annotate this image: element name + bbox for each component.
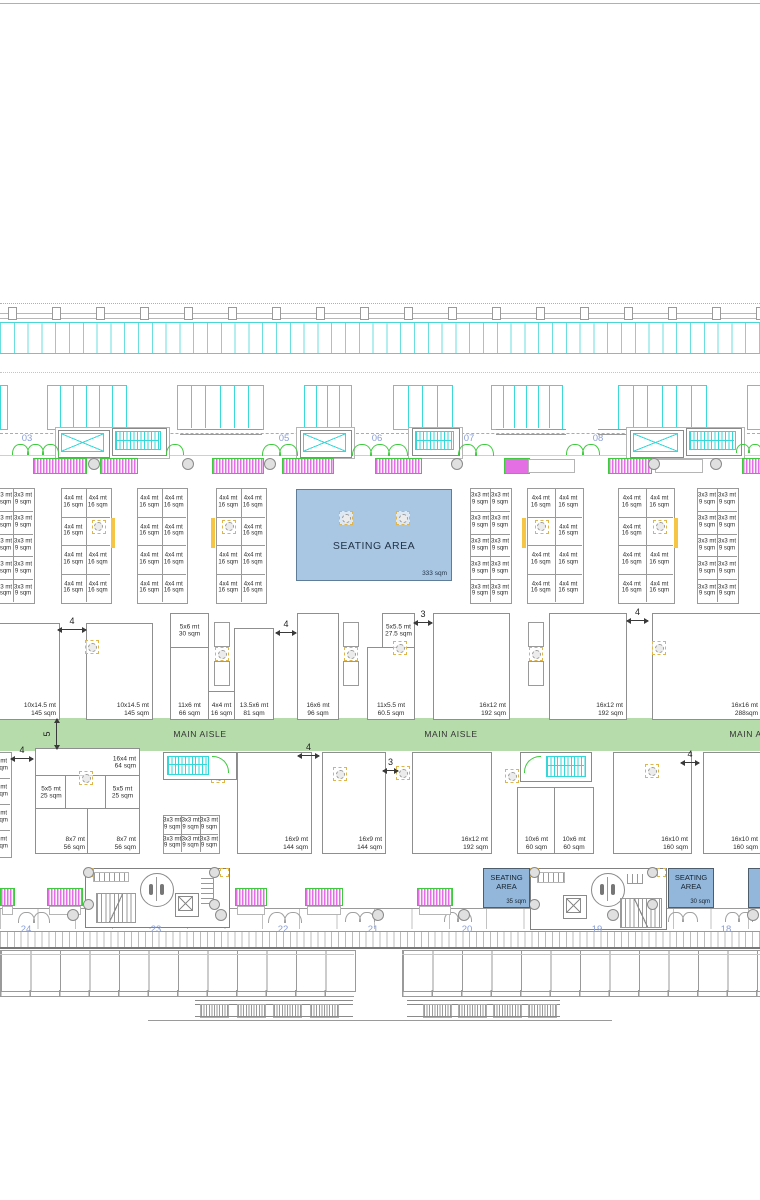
grid-line-h <box>618 545 673 546</box>
roof-rail-2 <box>0 318 760 319</box>
column-dot <box>372 909 384 921</box>
column-circle <box>399 514 408 523</box>
skylight-divider <box>422 385 423 428</box>
sink-row <box>93 872 129 882</box>
bench <box>100 458 138 474</box>
seating-area-small-size: 35 sqm <box>506 899 526 905</box>
column-circle <box>342 514 351 523</box>
pilaster-lower <box>528 661 544 686</box>
booth-cell-label: 3x3 mt 9 sqm <box>14 493 32 506</box>
door-arc <box>370 444 390 456</box>
booth-cell-label: 3x3 mt 9 sqm <box>491 561 509 574</box>
walkway-bottom-rail <box>407 1016 560 1017</box>
booth-label: 8x7 mt 56 sqm <box>115 836 136 851</box>
booth-cell-label: 3x3 mt 9 sqm <box>718 493 736 506</box>
booth-cell-label: 3x3 mt 9 sqm <box>718 515 736 528</box>
skylight-panel <box>177 385 264 430</box>
skylight-divider <box>503 385 504 428</box>
glazing-inner-line <box>402 954 760 955</box>
floor-plan-canvas: MAIN AISLE MAIN AISLE MAIN AISLE SEATING… <box>0 0 760 1200</box>
roof-post <box>712 307 721 320</box>
grid-label-bottom: 18 <box>721 924 732 935</box>
seating-area-small-size: 30 sqm <box>690 899 710 905</box>
grid-line-h <box>697 556 737 557</box>
elevator-box <box>58 430 110 458</box>
grid-line-h <box>0 579 33 580</box>
seating-area-small-label: SEATING AREA <box>669 873 713 891</box>
grid-label-bottom: 23 <box>151 924 162 935</box>
booth-cell-label: 4x4 mt 16 sqm <box>531 553 551 566</box>
booth-cell-label: 4x4 mt 16 sqm <box>243 581 263 594</box>
column-circle <box>648 767 657 776</box>
booth-cell-label: 4x4 mt 16 sqm <box>164 581 184 594</box>
glazing-inner-line <box>0 954 354 955</box>
booth: 11x6 mt 66 sqm <box>170 647 209 720</box>
booth-label: 16x9 mt 144 sqm <box>283 836 308 851</box>
booth-cell-label: 4x4 mt 16 sqm <box>88 496 108 509</box>
booth-cell-label: 3x3 mt 9 sqm <box>471 561 489 574</box>
booth-label: 5x6 mt 30 sqm <box>179 624 200 639</box>
skylight-divider <box>408 385 409 428</box>
grid-line-h <box>61 517 110 518</box>
bench-outline <box>528 459 575 473</box>
booth: 16x6 mt 96 sqm <box>297 613 339 720</box>
canopy-lines <box>496 429 566 435</box>
grid-line-h <box>0 511 33 512</box>
bench <box>504 458 530 474</box>
yellow-corner-mark <box>220 868 229 877</box>
booth-cell-label: 3x3 mt 9 sqm <box>471 515 489 528</box>
booth-label: 5x5 mt 25 sqm <box>40 785 61 800</box>
booth-cell-label: 4x4 mt 16 sqm <box>63 496 83 509</box>
column-circle <box>88 643 97 652</box>
column-circle <box>537 522 546 531</box>
booth: 16x12 mt 192 sqm <box>549 613 627 720</box>
grid-line-h <box>527 545 582 546</box>
column-dot <box>458 909 470 921</box>
booth-cell-label: 3x3 mt 9 sqm <box>698 538 716 551</box>
door-arc <box>682 912 698 922</box>
booth-label: 8x7 mt 56 sqm <box>64 836 85 851</box>
booth-cell-label: 3x3 mt 9 sqm <box>471 493 489 506</box>
booth-label: 16x9 mt 144 sqm <box>357 836 382 851</box>
column-symbol <box>222 520 236 534</box>
yellow-wall-strip <box>522 518 526 548</box>
column-dot <box>451 458 463 470</box>
grid-label-top: 07 <box>464 433 475 444</box>
bench <box>742 458 760 474</box>
skylight-divider <box>73 385 74 428</box>
walkway-bottom-rail <box>195 1016 353 1017</box>
skylight-divider <box>112 385 113 428</box>
booth-cell-label: 4x4 mt 16 sqm <box>88 553 108 566</box>
booth-cell-label: 3x3 mt 9 sqm <box>718 538 736 551</box>
booth-label: 16x16 mt 288sqm <box>731 702 758 717</box>
column-symbol <box>529 647 543 661</box>
pilaster-upper <box>343 622 359 647</box>
column-circle <box>94 522 103 531</box>
roof-post <box>8 307 17 320</box>
column-symbol <box>344 647 358 661</box>
column-symbol <box>333 767 347 781</box>
grid-line-h <box>137 574 186 575</box>
skylight-divider <box>60 385 61 428</box>
booth-cell-label: 3x3 mt 9 sqm <box>200 818 218 831</box>
grid-line-h <box>61 545 110 546</box>
grid-line-h <box>137 545 186 546</box>
canopy-lines <box>180 429 262 435</box>
booth-cell-label: 3x3 mt 9 sqm <box>491 538 509 551</box>
column-circle <box>508 772 517 781</box>
booth: 16x12 mt 192 sqm <box>412 752 492 854</box>
column-dot <box>647 899 658 910</box>
skylight-divider <box>549 385 550 428</box>
booth-cell-label: 4x4 mt 16 sqm <box>622 581 642 594</box>
roof-post <box>580 307 589 320</box>
column-symbol <box>92 520 106 534</box>
grid-line-h <box>0 534 33 535</box>
booth-cell-label: 4x4 mt 16 sqm <box>164 524 184 537</box>
dimension-line <box>414 622 432 623</box>
yellow-wall-strip <box>211 518 215 548</box>
booth-cell-label: 3x3 mt 9 sqm <box>718 561 736 574</box>
booth-cell-label: 4x4 mt 16 sqm <box>0 758 8 771</box>
column-dot <box>648 458 660 470</box>
booth-cell-label: 3x3 mt 9 sqm <box>0 493 12 506</box>
skylight-divider <box>339 385 340 428</box>
booth: 8x7 mt 56 sqm <box>87 808 140 854</box>
dimension-line <box>681 762 699 763</box>
booth: 5x6 mt 30 sqm <box>170 613 209 649</box>
grid-line-h <box>61 574 110 575</box>
booth-cell-label: 3x3 mt 9 sqm <box>698 493 716 506</box>
booth-cell-label: 4x4 mt 16 sqm <box>622 553 642 566</box>
column-dot <box>529 867 540 878</box>
escalator-box <box>686 428 742 456</box>
booth: 16x12 mt 192 sqm <box>433 613 510 720</box>
column-symbol <box>505 769 519 783</box>
wc-figure-male <box>600 884 604 895</box>
door-arc <box>279 444 298 456</box>
grid-line-h <box>216 517 265 518</box>
grid-line-h <box>0 804 10 805</box>
skylight-divider <box>676 385 677 428</box>
roof-post <box>404 307 413 320</box>
seating-area-small: SEATING AREA30 sqm <box>668 868 714 908</box>
main-aisle-label: MAIN AISLE <box>424 729 477 739</box>
column-dot <box>209 899 220 910</box>
door-arc <box>284 912 302 923</box>
door-arc <box>388 444 408 456</box>
booth-label: 16x10 mt 160 sqm <box>661 836 688 851</box>
booth-cell-label: 3x3 mt 9 sqm <box>0 538 12 551</box>
escalator-hatch <box>546 756 586 777</box>
booth-cell-label: 3x3 mt 9 sqm <box>14 538 32 551</box>
roof-post <box>668 307 677 320</box>
skylight-divider <box>514 385 515 428</box>
bench <box>0 888 15 906</box>
booth-label: 10x14.5 mt 145 sqm <box>117 702 149 717</box>
sink-row <box>537 872 565 883</box>
bench <box>212 458 264 474</box>
skylight-divider <box>327 385 328 428</box>
booth-label: 10x6 mt 60 sqm <box>562 836 585 851</box>
door-arc <box>212 756 229 773</box>
escalator-box <box>112 428 167 456</box>
grid-label-bottom: 22 <box>278 924 289 935</box>
booth: 16x9 mt 144 sqm <box>322 752 386 854</box>
booth-cell-label: 3x3 mt 9 sqm <box>14 584 32 597</box>
skylight-divider <box>86 385 87 428</box>
booth-label: 16x12 mt 192 sqm <box>596 702 623 717</box>
booth-label: 16x4 mt 64 sqm <box>113 755 136 770</box>
bench-outline <box>655 459 703 473</box>
column-circle <box>532 650 541 659</box>
booth-cell-label: 4x4 mt 16 sqm <box>649 581 669 594</box>
grid-line-h <box>163 834 218 835</box>
column-dot <box>215 909 227 921</box>
booth-cell-label: 4x4 mt 16 sqm <box>139 496 159 509</box>
grid-label-bottom: 21 <box>368 924 379 935</box>
roof-post <box>756 307 760 320</box>
elevator-box <box>630 430 684 458</box>
booth-cell-label: 3x3 mt 9 sqm <box>698 584 716 597</box>
skylight-divider <box>191 385 192 428</box>
escalator-divider <box>415 440 452 441</box>
skylight-divider <box>691 385 692 428</box>
stair-unit <box>520 752 592 782</box>
grid-line-h <box>618 517 673 518</box>
grid-label-bottom: 24 <box>21 924 32 935</box>
booth-label: 4x4 mt 16 sqm <box>211 702 232 717</box>
main-aisle-label: MAIN AISLE <box>729 729 760 739</box>
booth-cell-label: 4x4 mt 16 sqm <box>243 553 263 566</box>
skylight-divider <box>662 385 663 428</box>
bench <box>235 888 267 906</box>
door-arc <box>524 756 541 773</box>
roof-post <box>492 307 501 320</box>
booth-cell-label: 3x3 mt 9 sqm <box>163 836 181 849</box>
booth-cell-label: 3x3 mt 9 sqm <box>14 561 32 574</box>
skylight-divider <box>99 385 100 428</box>
roof-post <box>184 307 193 320</box>
dimension-label: 4 <box>687 749 692 759</box>
booth-cell-label: 4x4 mt 16 sqm <box>88 581 108 594</box>
booth-cell-label: 3x3 mt 9 sqm <box>471 538 489 551</box>
column-symbol <box>396 511 410 525</box>
elevator-box <box>563 895 587 919</box>
bench-base <box>237 906 265 915</box>
column-dot <box>182 458 194 470</box>
booth: 16x16 mt 288sqm <box>652 613 760 720</box>
wc-divider <box>607 877 608 901</box>
skylight-panel <box>47 385 127 430</box>
grid-line-h <box>0 830 10 831</box>
dimension-line-vertical <box>56 719 57 749</box>
escalator-hatch <box>167 756 209 775</box>
skylight-divider <box>538 385 539 428</box>
booth-cell-label: 3x3 mt 9 sqm <box>491 584 509 597</box>
roof-post <box>536 307 545 320</box>
column-circle <box>336 770 345 779</box>
dimension-label: 4 <box>635 607 640 617</box>
grid-line-h <box>697 534 737 535</box>
door-arc <box>475 444 494 456</box>
seating-area-main-size: 333 sqm <box>422 570 447 577</box>
column-circle <box>218 650 227 659</box>
dimension-label: 4 <box>19 745 24 755</box>
elevator-x <box>303 433 346 452</box>
booth: 4x4 mt 16 sqm <box>208 691 235 720</box>
dimension-label: 5 <box>42 731 52 736</box>
skylight-divider <box>647 385 648 428</box>
booth-cell-label: 4x4 mt 16 sqm <box>63 581 83 594</box>
booth-cell-label: 3x3 mt 9 sqm <box>0 584 12 597</box>
walkway-base-line <box>148 1020 612 1021</box>
booth-cell-label: 3x3 mt 9 sqm <box>471 584 489 597</box>
main-aisle-band: MAIN AISLE MAIN AISLE MAIN AISLE <box>0 718 760 751</box>
bench <box>608 458 652 474</box>
grid-label-top: 06 <box>372 433 383 444</box>
dimension-line <box>627 620 648 621</box>
booth: 5x5 mt 25 sqm <box>35 775 67 810</box>
stair-unit <box>163 752 237 780</box>
booth: 16x9 mt 144 sqm <box>237 752 312 854</box>
wc-figure-female <box>611 884 615 895</box>
booth-cell-label: 3x3 mt 9 sqm <box>698 515 716 528</box>
column-symbol <box>79 771 93 785</box>
bench <box>417 888 453 906</box>
roof-post <box>52 307 61 320</box>
escalator-divider <box>546 765 584 766</box>
facade-heavy-line <box>0 947 760 949</box>
booth-label: 10x6 mt 60 sqm <box>525 836 548 851</box>
elevator-box <box>175 893 199 917</box>
booth-cell-label: 4x4 mt 16 sqm <box>63 524 83 537</box>
column-circle <box>82 774 91 783</box>
roof-post <box>140 307 149 320</box>
booth-cell-label: 4x4 mt 16 sqm <box>218 581 238 594</box>
grid-line-h <box>216 574 265 575</box>
column-symbol <box>215 647 229 661</box>
column-circle <box>655 644 664 653</box>
escalator-box <box>412 428 460 456</box>
wc-figure-male <box>149 884 153 895</box>
column-dot <box>647 867 658 878</box>
escalator-divider <box>167 764 207 765</box>
skylight-panel <box>304 385 352 430</box>
wc-figure-female <box>160 884 164 895</box>
wc-divider <box>156 877 157 901</box>
booth: 10x6 mt 60 sqm <box>517 787 556 854</box>
escalator-divider <box>115 440 159 441</box>
roof-post <box>316 307 325 320</box>
column-circle <box>396 644 405 653</box>
booth-label: 11x6 mt 66 sqm <box>178 702 201 717</box>
column-dot <box>747 909 759 921</box>
booth-cell-label: 4x4 mt 16 sqm <box>139 581 159 594</box>
roof-post <box>228 307 237 320</box>
door-arc <box>748 444 760 453</box>
glazing-section <box>0 950 356 992</box>
booth-cell-label: 3x3 mt 9 sqm <box>491 493 509 506</box>
booth-label: 16x6 mt 96 sqm <box>306 702 329 717</box>
booth-cell-label: 3x3 mt 9 sqm <box>182 818 200 831</box>
booth-cell-label: 3x3 mt 9 sqm <box>0 515 12 528</box>
bench <box>47 888 83 906</box>
booth-cell-label: 4x4 mt 16 sqm <box>531 581 551 594</box>
booth-cell-label: 4x4 mt 16 sqm <box>558 524 578 537</box>
booth-label: 16x10 mt 160 sqm <box>731 836 758 851</box>
bench-base <box>419 906 451 915</box>
booth-cell-label: 4x4 mt 16 sqm <box>218 496 238 509</box>
booth-label: 16x12 mt 192 sqm <box>461 836 488 851</box>
skylight-divider <box>234 385 235 428</box>
booth-label: 5x5.5 mt 27.5 sqm <box>385 624 412 639</box>
booth-cell-label: 4x4 mt 16 sqm <box>558 581 578 594</box>
glazing-baseline <box>402 996 760 997</box>
booth-cell-label: 4x4 mt 16 sqm <box>164 553 184 566</box>
elevator-x <box>178 896 193 911</box>
dimension-label: 3 <box>420 609 425 619</box>
grid-line-h <box>618 574 673 575</box>
door-arc <box>582 444 600 455</box>
booth-label: 11x5.5 mt 60.5 sqm <box>377 702 405 717</box>
pilaster-upper <box>528 622 544 647</box>
booth-label: 5x5 mt 25 sqm <box>112 785 133 800</box>
booth-cell-label: 3x3 mt 9 sqm <box>491 515 509 528</box>
elevator-x <box>633 433 678 452</box>
dimension-label: 3 <box>388 757 393 767</box>
booth-cell-label: 3x3 mt 9 sqm <box>0 561 12 574</box>
column-dot <box>264 458 276 470</box>
roof-post <box>360 307 369 320</box>
booth-cell-label: 4x4 mt 16 sqm <box>649 553 669 566</box>
seating-area-small: SEATING AREA35 sqm <box>483 868 530 908</box>
booth-cell-label: 4x4 mt 16 sqm <box>0 836 8 849</box>
booth-cell-label: 4x4 mt 16 sqm <box>0 810 8 823</box>
dimension-line <box>58 629 86 630</box>
roof-rail-1 <box>0 313 760 314</box>
column-symbol <box>339 511 353 525</box>
booth-cell-label: 4x4 mt 16 sqm <box>622 496 642 509</box>
booth-cell-label: 4x4 mt 16 sqm <box>558 553 578 566</box>
door-arc <box>42 444 59 455</box>
skylight-panel <box>393 385 453 430</box>
yellow-wall-strip <box>111 518 115 548</box>
column-circle <box>347 650 356 659</box>
column-dot <box>209 867 220 878</box>
booth-cell-label: 3x3 mt 9 sqm <box>14 515 32 528</box>
column-symbol <box>653 520 667 534</box>
glazing-section <box>402 950 760 992</box>
booth-cell-label: 4x4 mt 16 sqm <box>0 784 8 797</box>
booth: 13.5x6 mt 81 sqm <box>234 628 274 720</box>
bench <box>375 458 422 474</box>
booth-cell-label: 4x4 mt 16 sqm <box>558 496 578 509</box>
grid-label-bottom: 20 <box>462 924 473 935</box>
grid-line-h <box>470 579 510 580</box>
bench <box>33 458 87 474</box>
elevator-x <box>566 898 581 913</box>
booth-cell-label: 4x4 mt 16 sqm <box>649 496 669 509</box>
roof-post <box>448 307 457 320</box>
bench <box>282 458 334 474</box>
column-symbol <box>645 764 659 778</box>
seating-area-main-label: SEATING AREA <box>297 540 451 552</box>
bench-base <box>307 906 341 915</box>
booth-cell-label: 3x3 mt 9 sqm <box>163 818 181 831</box>
